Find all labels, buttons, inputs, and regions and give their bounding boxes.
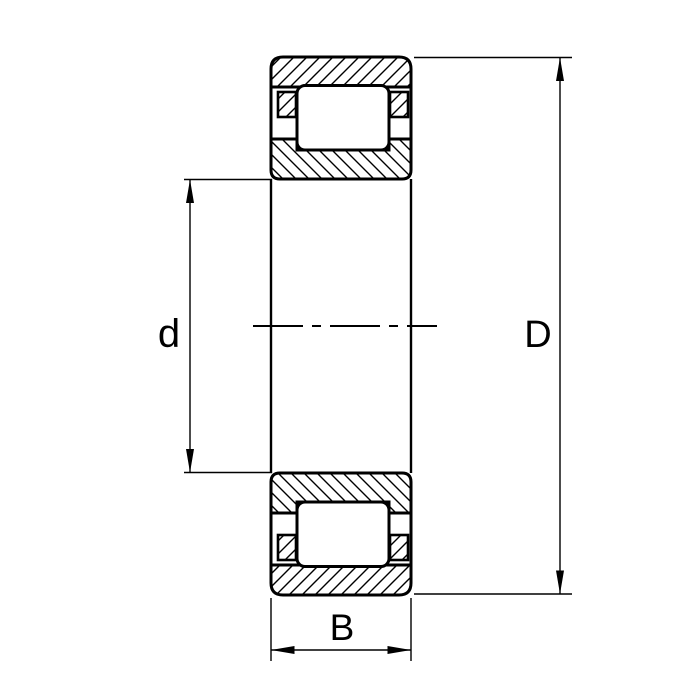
cage-bottom-left [278, 535, 296, 560]
roller-bottom [297, 502, 389, 567]
outer-ring-top [271, 57, 411, 87]
bearing-top-section [271, 57, 411, 179]
cage-bottom-right [390, 535, 408, 560]
roller-top [297, 86, 389, 151]
bore-diameter-label: d [158, 312, 180, 356]
cage-top-right [390, 92, 408, 117]
outer-diameter-label: D [524, 314, 551, 356]
bearing-drawing-canvas: d D B [0, 0, 700, 700]
outer-ring-bottom [271, 565, 411, 595]
bearing-bottom-section [271, 473, 411, 595]
bearing-cross-section-svg: d D B [0, 0, 700, 700]
width-label: B [330, 607, 355, 648]
cage-top-left [278, 92, 296, 117]
